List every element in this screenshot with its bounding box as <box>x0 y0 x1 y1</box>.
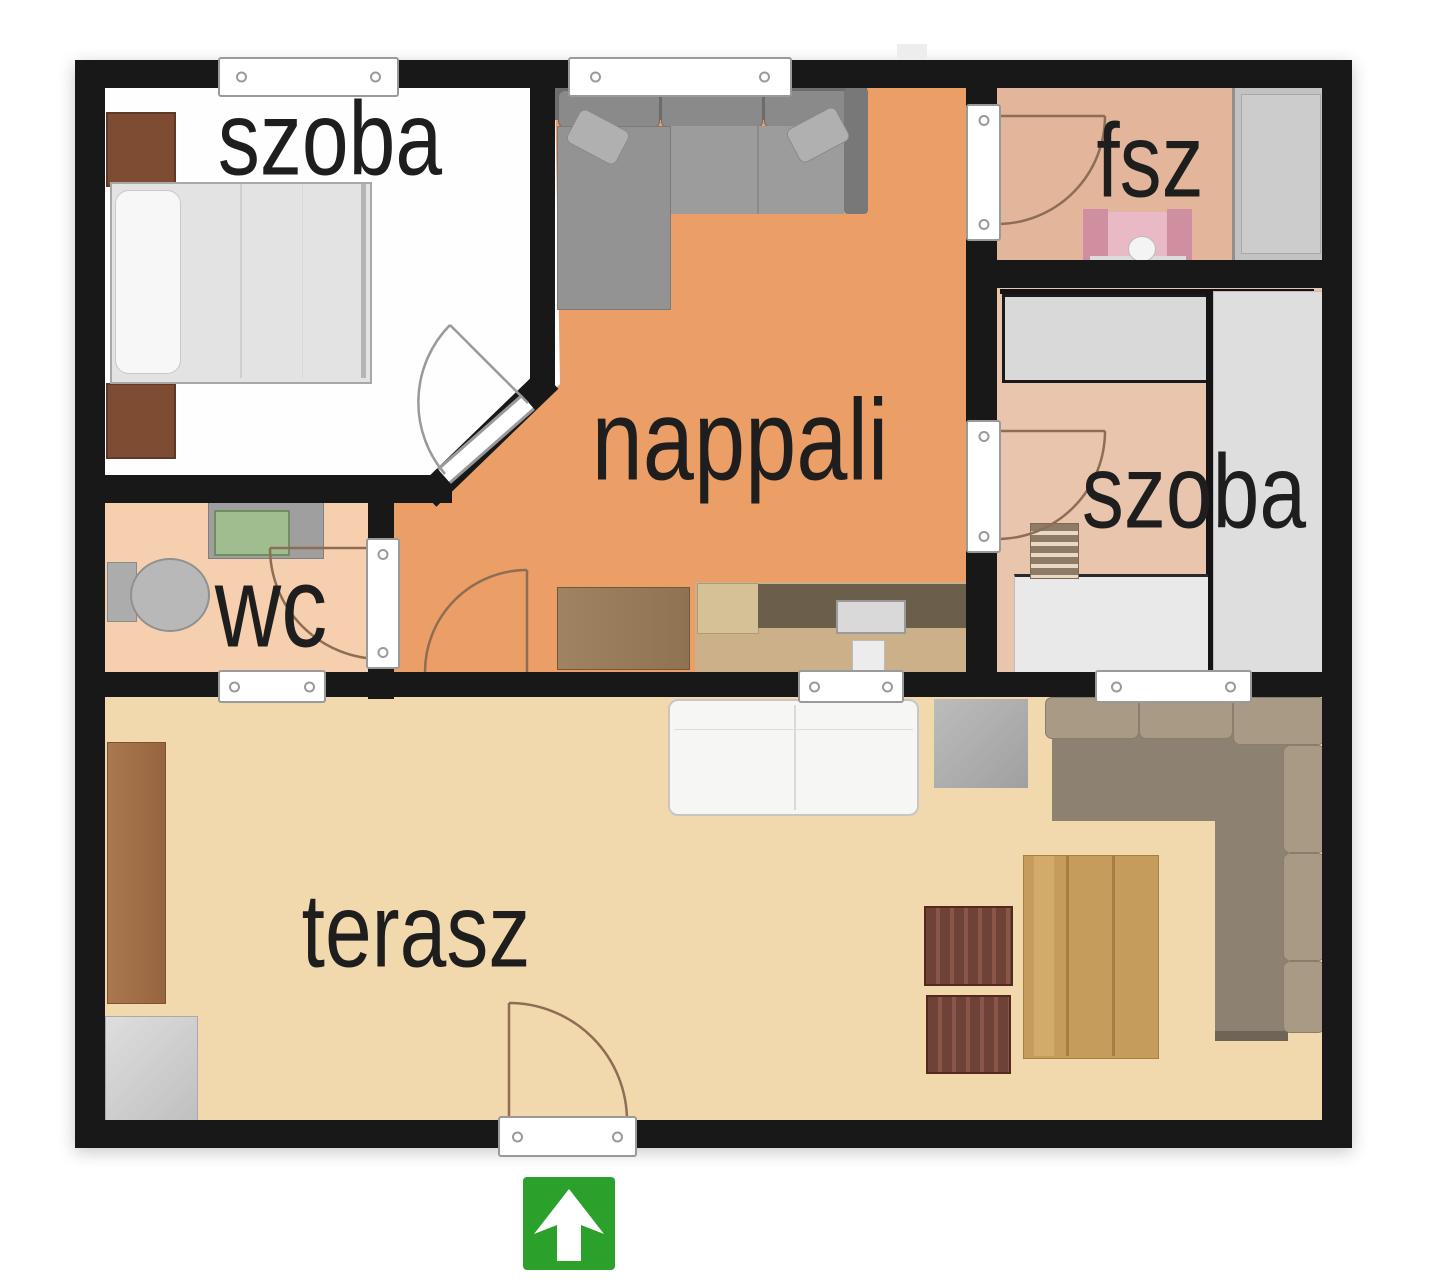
kitchen-cabinet <box>557 587 690 670</box>
wall-bedroom1-wc <box>75 475 452 503</box>
bar-stool <box>852 640 885 673</box>
corner-sofa-seat <box>1052 733 1220 821</box>
nightstand <box>106 112 176 187</box>
nightstand <box>106 383 176 459</box>
desk-chair <box>1030 523 1079 579</box>
shower <box>1232 85 1330 263</box>
corner-sofa-back <box>1139 697 1233 739</box>
wall-bedroom1-living <box>530 88 555 386</box>
wall-left <box>75 60 105 1148</box>
window-wc <box>218 670 326 703</box>
window-living-room <box>568 57 792 97</box>
bathroom-sink <box>1128 236 1156 262</box>
top-wall-notch <box>897 44 927 60</box>
corner-sofa-back <box>1233 697 1325 745</box>
door-frame-wc <box>366 538 400 669</box>
room-label-bedroom-2: szoba <box>1082 440 1306 545</box>
entrance-door-threshold <box>498 1116 637 1157</box>
room-label-wc: wc <box>215 551 327 666</box>
window-kitchen <box>798 670 904 703</box>
entrance-marker <box>523 1177 615 1270</box>
corner-sofa-back <box>1283 745 1325 853</box>
bed-footboard <box>361 184 366 378</box>
side-table <box>934 699 1028 788</box>
wall-right <box>1322 60 1352 1148</box>
white-bench <box>668 699 919 816</box>
kitchen-cabinet-light <box>697 583 759 634</box>
floor-plan: szoba nappali fsz szoba wc terasz <box>0 0 1433 1283</box>
corner-sofa-back <box>1283 961 1325 1033</box>
door-frame-bedroom-2 <box>966 420 1001 553</box>
window-bedroom-2 <box>1095 670 1252 703</box>
door-frame-bathroom <box>966 104 1001 241</box>
bed-pillow <box>115 190 181 374</box>
blanket-fold <box>240 184 242 378</box>
blanket-fold <box>302 184 303 378</box>
pallet-table <box>926 995 1011 1074</box>
corner-sofa-back <box>1283 853 1325 961</box>
desk <box>1014 574 1208 675</box>
room-label-terrace: terasz <box>302 879 531 984</box>
wood-coffee-table <box>1023 855 1159 1059</box>
wardrobe <box>1002 294 1213 383</box>
room-label-bedroom-1: szoba <box>218 87 442 192</box>
kitchen-sink <box>836 600 906 634</box>
terrace-bench-left <box>107 742 166 1004</box>
up-arrow-icon <box>523 1177 615 1270</box>
room-label-bathroom: fsz <box>1096 109 1203 214</box>
wall-bathroom-bedroom2 <box>966 260 1352 288</box>
corner-sofa-back <box>1045 697 1139 739</box>
room-label-living-room: nappali <box>592 384 889 499</box>
pallet-table <box>924 906 1013 986</box>
corner-sofa-seat <box>1215 733 1288 1041</box>
wall-bottom <box>75 1120 1352 1148</box>
sofa-armrest <box>844 88 868 214</box>
toilet-bowl <box>130 558 210 632</box>
storage-box <box>105 1016 198 1124</box>
bed <box>110 182 372 384</box>
